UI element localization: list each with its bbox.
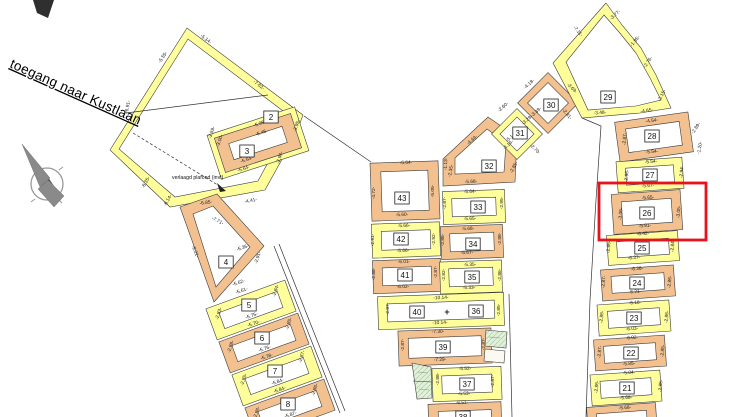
parcel-shape	[381, 170, 429, 212]
boundary-line	[582, 118, 601, 417]
unit-number: 41	[401, 271, 410, 280]
unit-number: 35	[468, 273, 477, 282]
measurement-label: -2.86-	[497, 268, 503, 281]
unit-number: 25	[638, 244, 647, 253]
measurement-label: -6.02-	[625, 335, 638, 342]
measurement-label: -5.84-	[622, 370, 635, 377]
unit-number: 33	[474, 203, 483, 212]
measurement-label: -2.85-	[657, 379, 664, 392]
measurement-label: -6.03-	[625, 326, 638, 333]
unit-number: 22	[627, 349, 636, 358]
ceiling-note: verlaagd plafond (invt)	[172, 175, 224, 181]
measurement-label: -2.87-	[400, 338, 406, 351]
unit-number: 5	[247, 301, 252, 310]
measurement-label: -3.05-	[675, 205, 682, 218]
measurement-label: -7.30-	[432, 329, 445, 335]
measurement-label: -2.82-	[441, 268, 447, 281]
unit-number: 36	[472, 307, 481, 316]
measurement-label: -2.89-	[690, 121, 702, 135]
measurement-label: -2.87-	[621, 132, 628, 145]
measurement-label: -5.52-	[459, 366, 472, 372]
measurement-label: -2.86-	[598, 310, 605, 323]
solid-shape	[33, 0, 54, 18]
measurement-label: -5.05-	[430, 184, 436, 197]
measurement-label: -1.13-	[443, 157, 449, 170]
boundary-line	[304, 116, 371, 162]
unit-number: 29	[604, 93, 613, 102]
measurement-label: -5.64-	[400, 160, 413, 166]
measurement-label: -4.41-	[244, 197, 258, 206]
measurement-label: -2.94-	[678, 165, 685, 178]
measurement-label: -10.14-	[433, 295, 449, 302]
measurement-label: -2.96-	[623, 169, 630, 182]
floor-plan-page: -5.14--7.62--5.55--6.91--6.35--6.14--6.8…	[0, 0, 736, 417]
measurement-label: -5.65-	[641, 195, 654, 202]
unit-number: 26	[643, 209, 652, 218]
north-arrow-icon: N	[22, 144, 64, 207]
measurement-label: -2.91-	[370, 233, 376, 246]
measurement-label: -6.37-	[627, 255, 640, 262]
measurement-label: -2.85-	[496, 303, 502, 316]
unit-number: 34	[469, 240, 478, 249]
unit-number: 2	[269, 113, 274, 122]
measurement-label: -2.87-	[442, 196, 448, 209]
measurement-label: -5.68-	[619, 395, 632, 402]
unit-number: 31	[516, 129, 525, 138]
measurement-label: -6.21-	[628, 289, 641, 296]
unit-number: 39	[439, 343, 448, 352]
unit-number: 38	[459, 413, 468, 417]
measurement-label: -7.29-	[434, 357, 447, 363]
measurement-label: -6.01-	[398, 259, 411, 265]
measurement-label: -5.54-	[644, 159, 657, 166]
measurement-label: -5.67-	[461, 250, 474, 256]
unit-number: 4	[224, 258, 229, 267]
measurement-label: -2.87-	[596, 345, 603, 358]
unit-number: 28	[648, 132, 657, 141]
measurement-label: -5.60-	[396, 212, 409, 218]
site-plan-drawing: -5.14--7.62--5.55--6.91--6.35--6.14--6.8…	[0, 0, 736, 417]
measurement-label: -3.48-	[593, 110, 606, 117]
unit-number: 3	[245, 147, 250, 156]
measurement-label: -1.20-	[696, 141, 704, 155]
measurement-label: -2.92-	[431, 232, 437, 245]
measurement-label: -6.02-	[397, 284, 410, 290]
street-label: toegang naar Kustlaan	[8, 56, 144, 128]
measurement-label: -2.86-	[440, 233, 446, 246]
measurement-label: -5.33-	[463, 285, 476, 291]
unit-number: 21	[623, 384, 632, 393]
measurement-label: -2.88-	[435, 372, 441, 385]
unit-number: 23	[630, 314, 639, 323]
hatched-utility-room	[485, 330, 507, 348]
unit-number: 37	[463, 380, 472, 389]
unit-number: 6	[260, 334, 265, 343]
measurement-label: -3.06-	[617, 207, 624, 220]
measurement-label: -6.18-	[628, 300, 641, 307]
measurement-label: -10.14-	[432, 320, 448, 327]
unit-number: 24	[633, 279, 642, 288]
measurement-label: -5.64-	[464, 189, 477, 195]
measurement-label: -2.86-	[663, 310, 670, 323]
measurement-label: -2.87-	[433, 265, 439, 278]
plus-sign: +	[444, 307, 449, 317]
unit-number: 43	[398, 194, 407, 203]
measurement-label: -2.88-	[497, 232, 503, 245]
measurement-label: -5.81-	[638, 223, 651, 230]
measurement-label: -2.88-	[371, 267, 377, 280]
unit-number: 8	[286, 400, 291, 409]
measurement-label: -5.66-	[398, 223, 411, 229]
measurement-label: -4.72-	[371, 186, 377, 199]
unit-number: 40	[413, 308, 422, 317]
measurement-label: -5.68-	[618, 405, 631, 412]
unit-number: 32	[485, 162, 494, 171]
parcels-layer	[110, 3, 693, 417]
measurement-label: -2.70-	[528, 143, 541, 156]
measurement-label: -2.87-	[481, 337, 487, 350]
measurement-label: -5.54-	[645, 149, 658, 156]
measurement-label: -6.36-	[630, 266, 643, 273]
measurement-label: -5.68-	[465, 179, 478, 185]
unit-number: 42	[397, 235, 406, 244]
measurement-label: -2.86-	[593, 380, 600, 393]
unit-number: 30	[547, 101, 556, 110]
measurement-label: -5.85-	[622, 361, 635, 368]
measurement-label: -2.60-	[497, 101, 511, 114]
measurement-label: -6.51-	[456, 400, 469, 406]
measurement-label: -5.35-	[464, 262, 477, 268]
measurement-label: -2.86-	[666, 275, 673, 288]
measurement-label: -2.86-	[605, 240, 612, 253]
measurement-label: -2.87-	[385, 302, 391, 315]
measurement-label: -2.95-	[499, 196, 505, 209]
measurement-label: -2.87-	[490, 374, 496, 387]
boundary-line	[509, 294, 512, 417]
unit-number: 27	[646, 171, 655, 180]
measurement-label: -5.53-	[458, 391, 471, 397]
measurement-label: -5.66-	[397, 248, 410, 254]
solid-shape	[484, 349, 505, 363]
unit-number: 7	[273, 367, 278, 376]
measurement-label: -2.87-	[600, 275, 607, 288]
compass-needle-icon	[22, 144, 50, 187]
measurement-label: -5.65-	[464, 216, 477, 222]
measurement-label: -5.68-	[462, 226, 475, 232]
measurement-label: -6.42-	[636, 231, 649, 238]
measurement-label: -2.85-	[659, 344, 666, 357]
